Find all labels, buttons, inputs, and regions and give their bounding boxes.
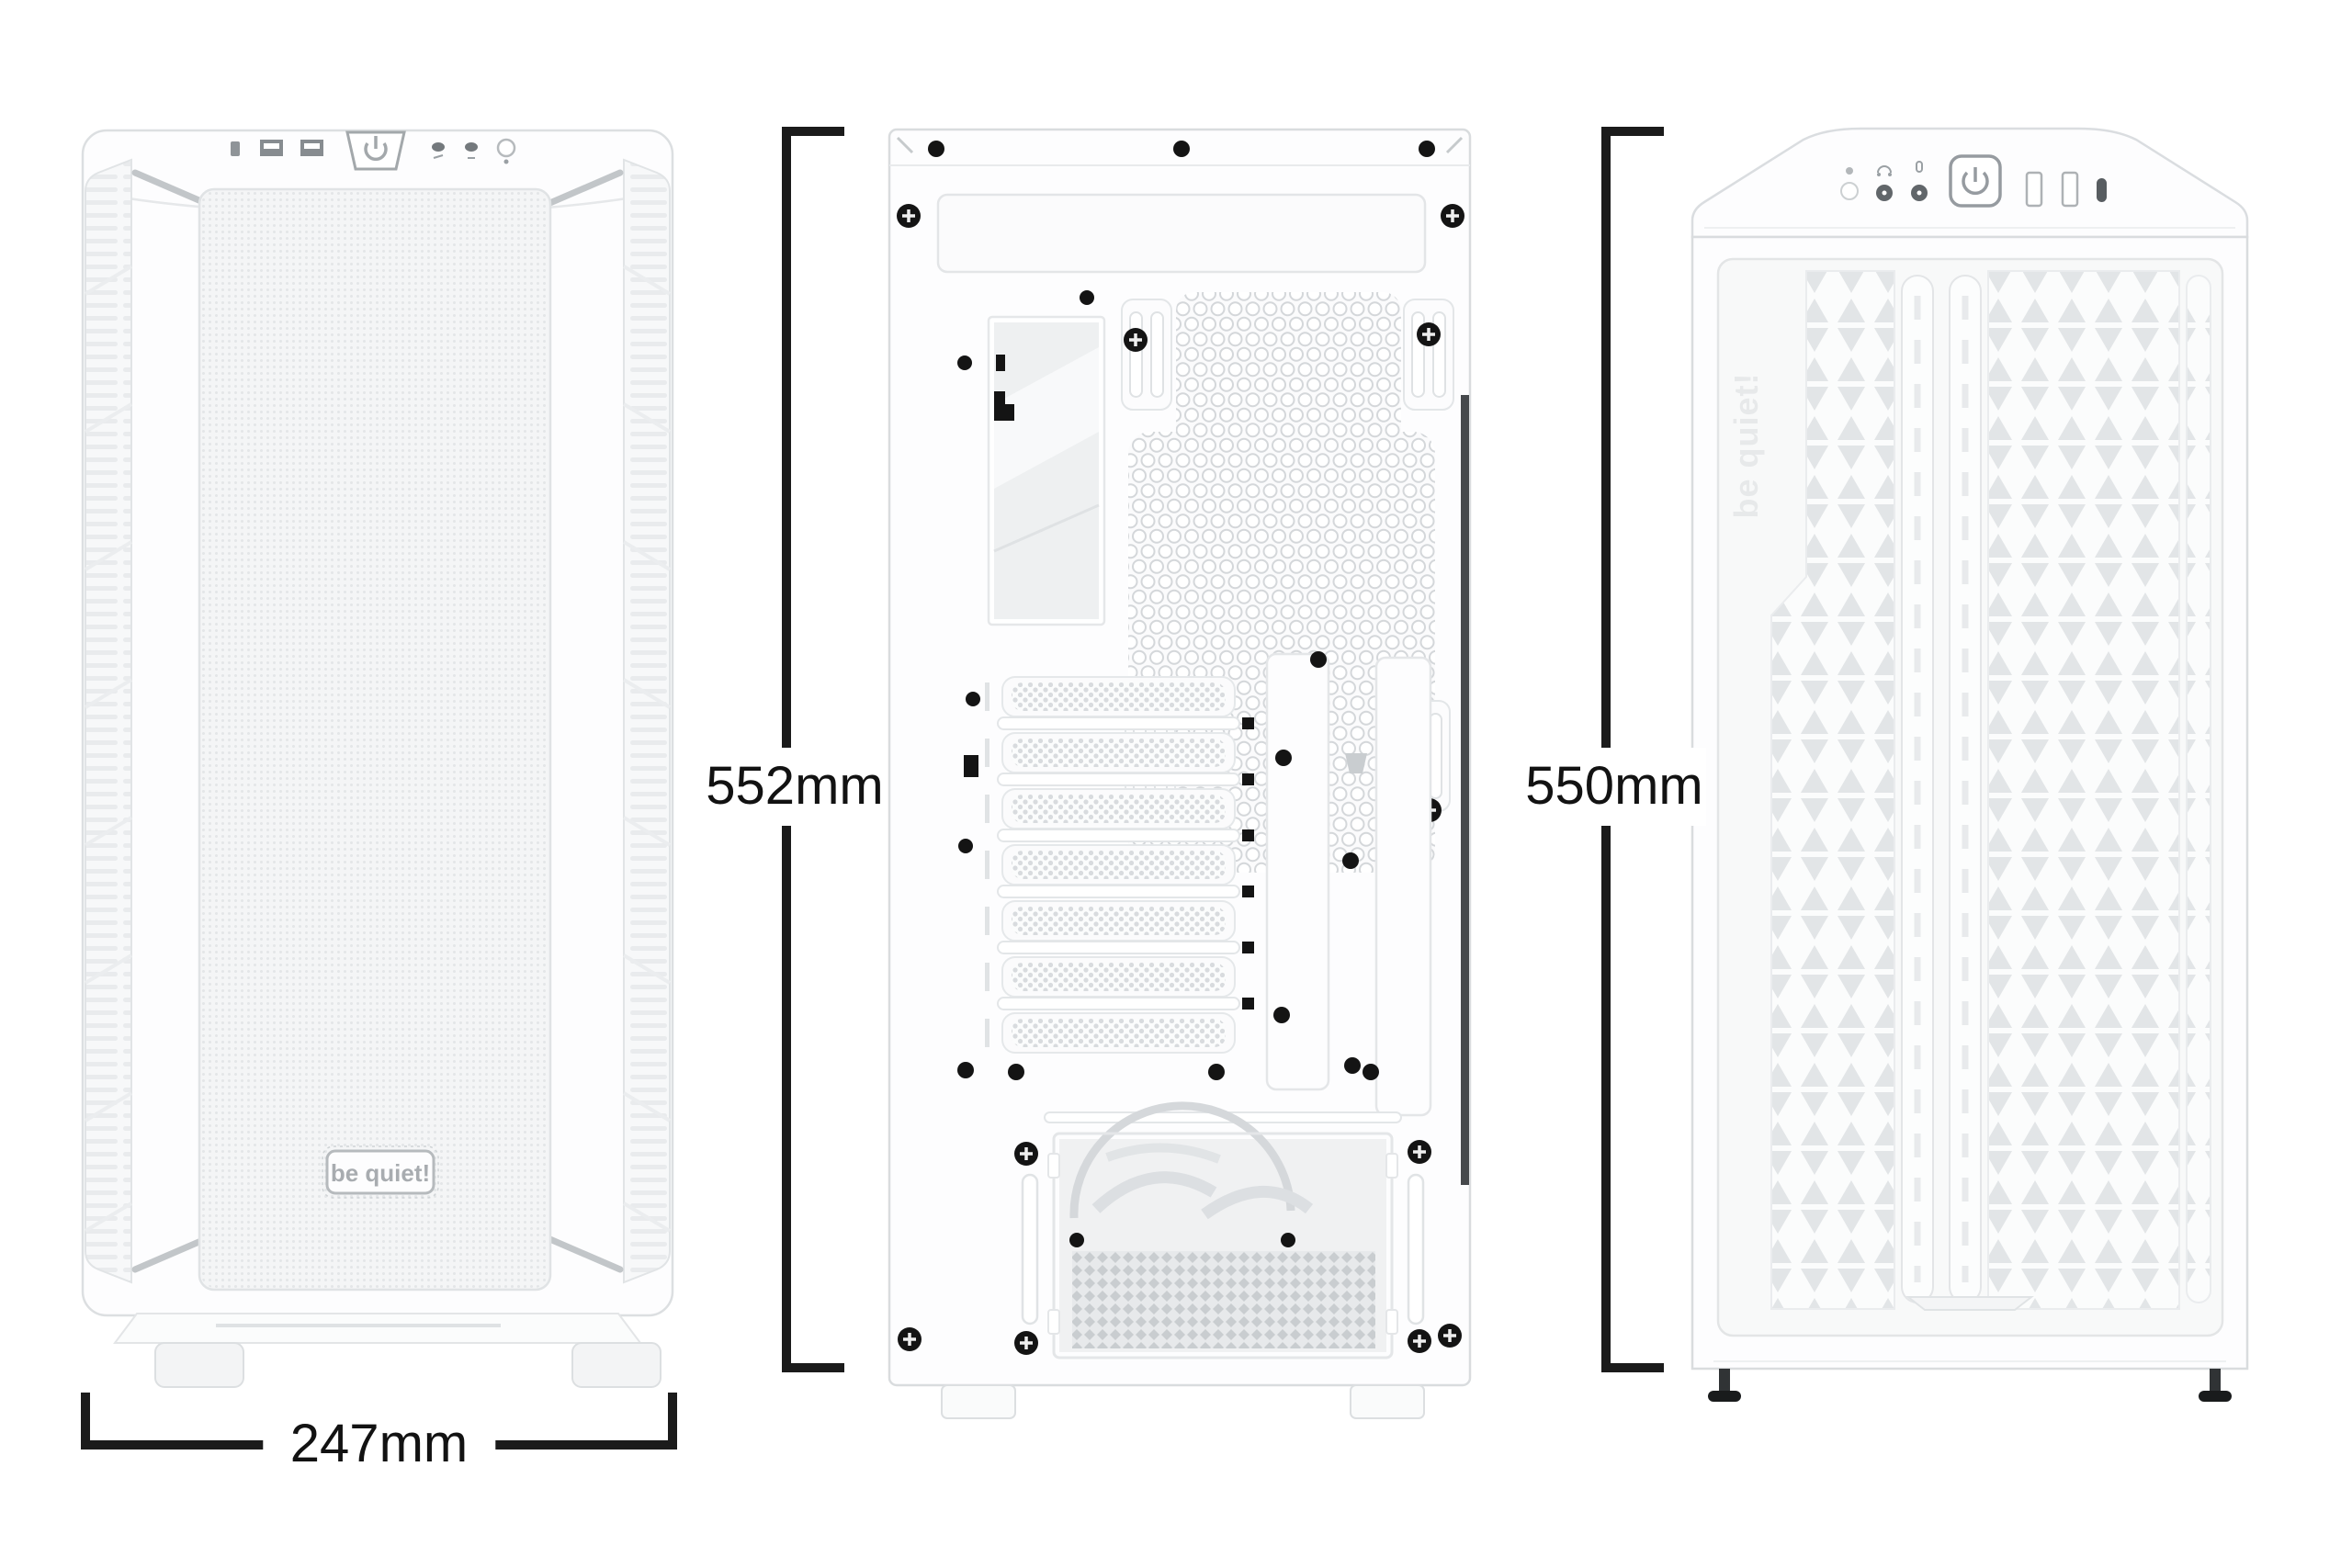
screw-icon [1419, 141, 1435, 157]
front-mesh-view-figure: be quiet! [1686, 119, 2260, 1433]
front-height-dimension-label: 550mm [1522, 748, 1706, 826]
pci-separator [998, 886, 1239, 897]
psu-cutout [1048, 1106, 1397, 1358]
screw-icon [957, 355, 972, 370]
pci-slot-cover [1002, 901, 1235, 941]
pci-slot-cover [1002, 845, 1235, 885]
motherboard-io-cutout [989, 317, 1104, 625]
power-button-icon [1951, 156, 2000, 206]
pci-slot-cover [1002, 733, 1235, 773]
embossed-brand-text: be quiet! [1727, 373, 1765, 519]
led-ring-icon [1841, 183, 1858, 199]
pci-slot-cover [1002, 1013, 1235, 1053]
front-height-dimension-bracket: 550mm [1601, 127, 1664, 1372]
screw-icon [1342, 852, 1359, 869]
psu-slot-right [1408, 1175, 1423, 1324]
pci-slot-cover [1002, 677, 1235, 716]
rear-right-foot [1351, 1385, 1424, 1418]
thumbscrew-icon [1438, 1324, 1462, 1348]
psu-floor-mesh [1072, 1251, 1375, 1348]
screw-icon [1281, 1233, 1295, 1247]
usb-c-icon [2097, 178, 2107, 202]
audio-jack-icon [231, 141, 240, 156]
screw-icon [1080, 290, 1094, 305]
pci-separator [998, 829, 1239, 841]
front-right-foot [572, 1343, 661, 1387]
psu-slot-left [1023, 1175, 1037, 1324]
screw-icon [966, 692, 980, 706]
screw-icon [1273, 1007, 1290, 1023]
fan-screw-slots [1404, 299, 1453, 410]
side-panel-edge [1461, 395, 1469, 1185]
front-pedestal [115, 1314, 640, 1343]
pc-case-dimensions-diagram: be quiet! 247mm [0, 0, 2352, 1568]
thumbscrew-icon [1417, 322, 1441, 346]
pci-separator [998, 717, 1239, 729]
screw-icon [1275, 750, 1292, 766]
screw-icon [928, 141, 944, 157]
rear-left-foot [942, 1385, 1015, 1418]
mesh-divider-strip [1950, 276, 1981, 1303]
rear-height-dimension-bracket: 552mm [782, 127, 844, 1372]
mesh-right-foot [2199, 1369, 2232, 1402]
panel-release-notch [1908, 1297, 2031, 1310]
fan-screw-slots [1122, 299, 1171, 410]
thumbscrew-icon [1441, 204, 1464, 228]
rear-view-figure [877, 119, 1511, 1433]
usb-a-icon [2027, 173, 2041, 206]
thumbscrew-icon [898, 1327, 922, 1351]
mesh-panel-right [1988, 271, 2179, 1309]
front-left-wing-vent [85, 160, 131, 1282]
mesh-divider-strip [1902, 276, 1933, 1303]
front-mesh-panel [199, 189, 550, 1290]
usb-a-icon [2063, 173, 2077, 206]
rear-right-panel [1267, 654, 1329, 1089]
front-left-foot [155, 1343, 243, 1387]
thumbscrew-icon [1124, 328, 1148, 352]
pci-separator [998, 773, 1239, 785]
rear-top-vent-slot [938, 195, 1425, 272]
thumbscrew-icon [897, 204, 921, 228]
screw-icon [1208, 1064, 1225, 1080]
brand-badge-text: be quiet! [331, 1159, 430, 1187]
mesh-panel-edge-column [2187, 276, 2211, 1303]
screw-icon [1173, 141, 1190, 157]
rear-height-dimension-label: 552mm [703, 748, 887, 826]
rear-right-panel [1376, 658, 1430, 1115]
front-right-wing-vent [624, 160, 670, 1282]
thumbscrew-icon [1014, 1142, 1038, 1166]
screw-icon [957, 1062, 974, 1078]
pci-slot-area [985, 677, 1254, 1053]
power-led-icon [1846, 167, 1853, 175]
pci-separator [998, 998, 1239, 1010]
pci-slot-cover [1002, 789, 1235, 829]
width-dimension-label: 247mm [263, 1415, 495, 1474]
screw-icon [958, 839, 973, 853]
screw-icon [1344, 1057, 1361, 1074]
screw-icon [1008, 1064, 1024, 1080]
usb-a-icon [300, 140, 323, 156]
power-button-icon [347, 132, 404, 169]
brand-badge: be quiet! [322, 1146, 438, 1198]
connector-port [964, 755, 978, 777]
pci-separator [998, 942, 1239, 953]
usb-a-icon [260, 140, 283, 156]
front-view-figure: be quiet! [78, 119, 684, 1396]
thumbscrew-icon [1014, 1331, 1038, 1355]
thumbscrew-icon [1408, 1140, 1431, 1164]
pci-slot-cover [1002, 957, 1235, 997]
width-dimension-bracket: 247mm [81, 1393, 677, 1450]
screw-icon [1310, 651, 1327, 668]
mesh-left-foot [1708, 1369, 1741, 1402]
screw-icon [1069, 1233, 1084, 1247]
screw-icon [1363, 1064, 1379, 1080]
thumbscrew-icon [1408, 1329, 1431, 1353]
